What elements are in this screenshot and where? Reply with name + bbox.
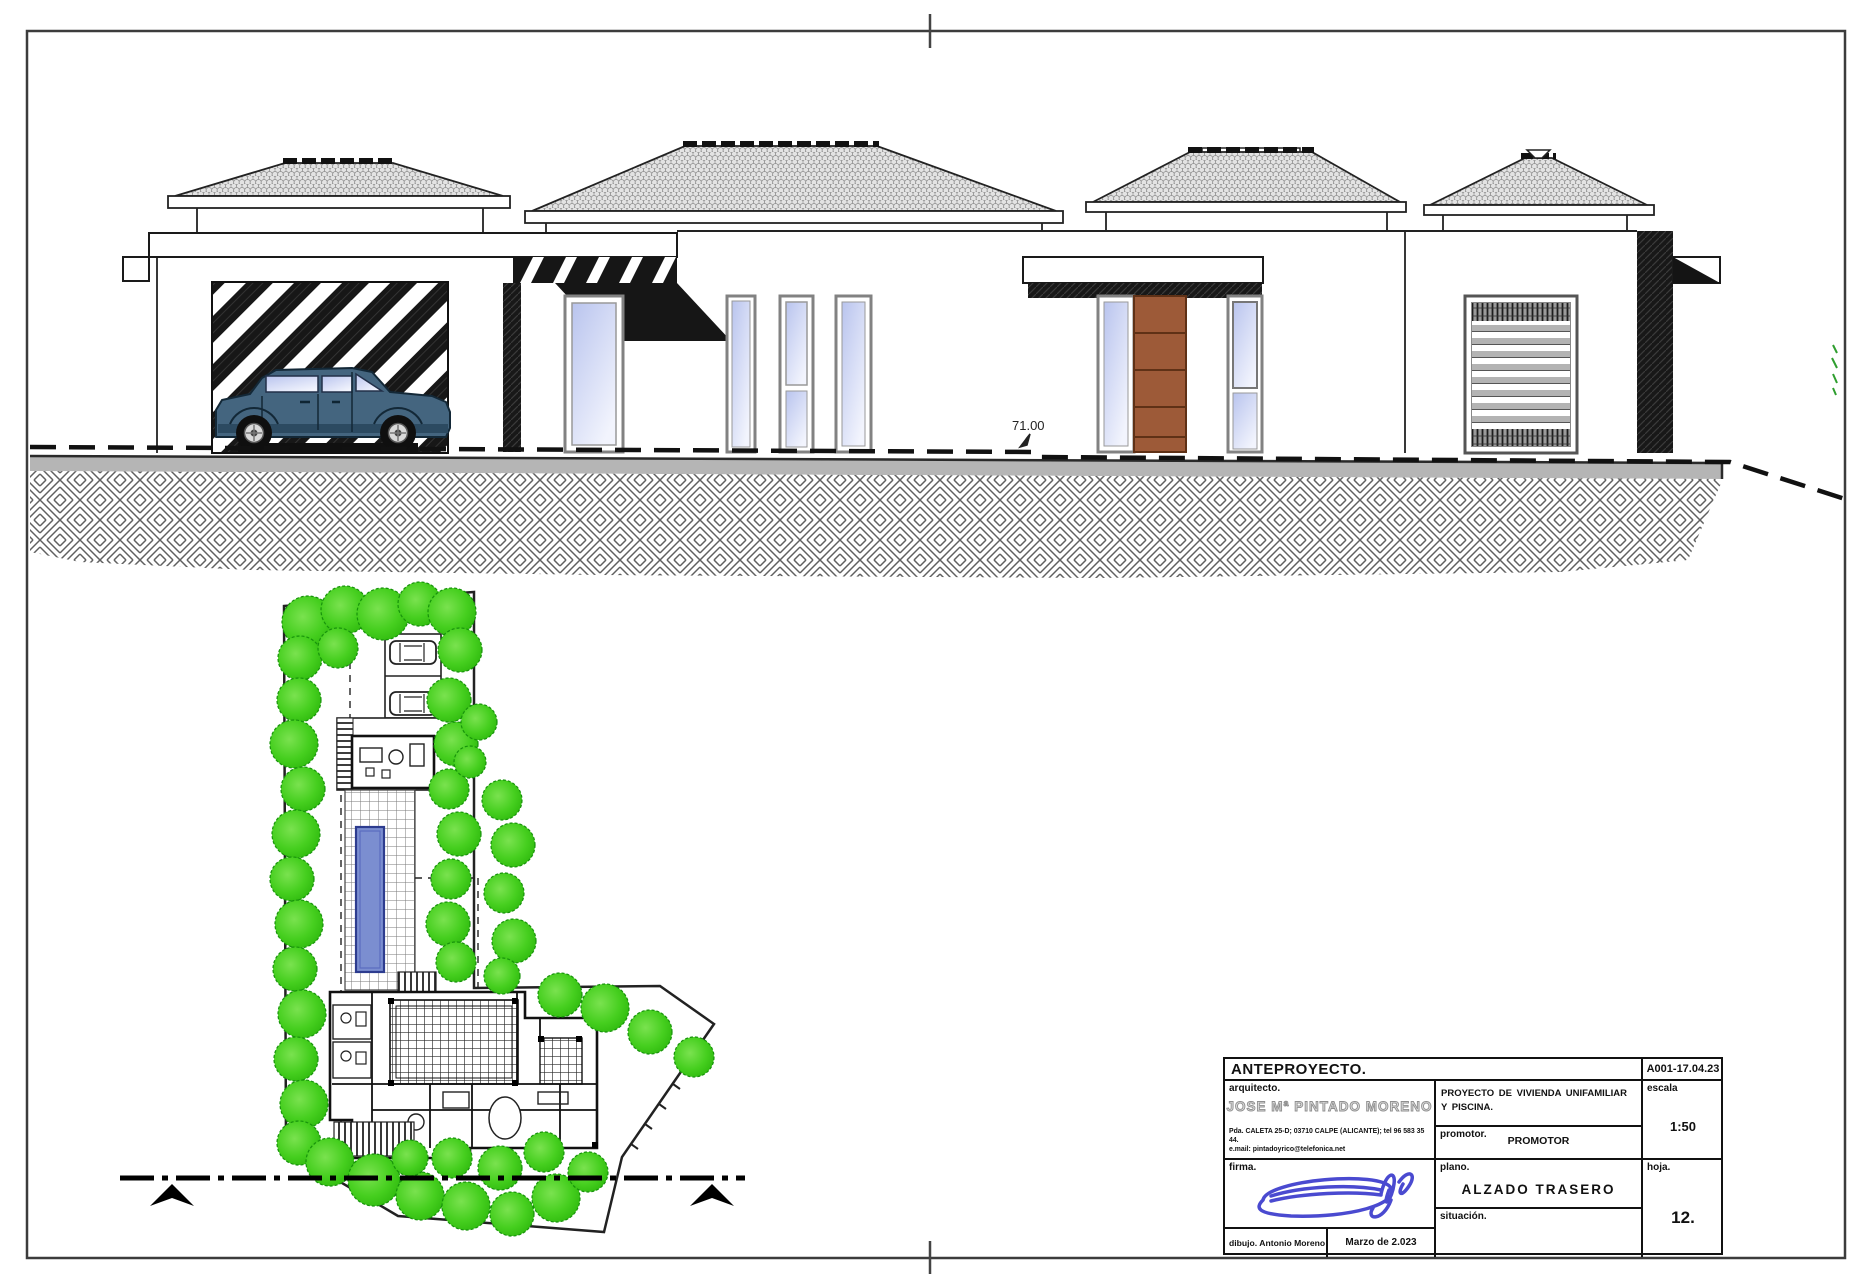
drawn-by-cell: dibujo. Antonio Moreno <box>1225 1229 1328 1257</box>
sheet-number-cell: hoja. 12. <box>1643 1160 1723 1257</box>
tree-icon <box>437 812 481 856</box>
title-block: ANTEPROYECTO. A001-17.04.23 arquitecto. … <box>1223 1057 1723 1255</box>
scale-label: escala <box>1647 1083 1678 1094</box>
tree-icon <box>426 902 470 946</box>
garage-corner-shadow <box>1637 231 1673 453</box>
tree-icon <box>581 984 629 1032</box>
hip-roof-garage <box>1424 150 1654 231</box>
drawn-by-label: dibujo. <box>1229 1238 1257 1248</box>
signature-cell: firma. <box>1225 1160 1436 1229</box>
tree-icon <box>454 746 486 778</box>
tree-icon <box>436 942 476 982</box>
signature-icon <box>1233 1162 1429 1226</box>
project-cell: PROYECTO DE VIVIENDA UNIFAMILIAR Y PISCI… <box>1436 1081 1643 1160</box>
sheet-code: A001-17.04.23 <box>1643 1059 1723 1075</box>
plan-name-cell: plano. ALZADO TRASERO <box>1436 1160 1643 1209</box>
plan-label: plano. <box>1440 1162 1469 1173</box>
tree-icon <box>280 1080 328 1128</box>
section-arrow-icon <box>690 1184 734 1206</box>
title-block-phase-cell: ANTEPROYECTO. <box>1225 1059 1643 1081</box>
tree-icon <box>538 973 582 1017</box>
rear-elevation: 71.00 <box>30 144 1845 578</box>
tall-window <box>727 296 755 452</box>
tree-icon <box>392 1140 428 1176</box>
tree-icon <box>484 958 520 994</box>
tree-icon <box>281 767 325 811</box>
tree-icon <box>431 859 471 899</box>
location-cell: situación. <box>1436 1209 1643 1257</box>
drawing-sheet: 71.00 <box>0 0 1859 1280</box>
tree-icon <box>628 1010 672 1054</box>
hip-roof-center <box>525 144 1063 233</box>
fascia-step <box>123 257 149 281</box>
entrance-canopy <box>1023 257 1263 283</box>
fascia-band <box>149 233 677 257</box>
tree-icon <box>278 636 322 680</box>
architect-email: e.mail: pintadoyrico@telefonica.net <box>1229 1146 1432 1155</box>
tree-icon <box>490 1192 534 1236</box>
tree-icon <box>478 1146 522 1190</box>
scale-cell: escala 1:50 <box>1643 1081 1723 1160</box>
date-cell: Marzo de 2.023 <box>1328 1229 1436 1257</box>
hip-roof-entrance <box>1086 148 1406 231</box>
tree-icon <box>432 1138 472 1178</box>
location-label: situación. <box>1440 1211 1487 1222</box>
garage-door <box>1465 296 1577 453</box>
tree-icon <box>568 1152 608 1192</box>
tree-icon <box>442 1182 490 1230</box>
tree-icon <box>278 990 326 1038</box>
promoter-value: PROMOTOR <box>1436 1135 1641 1147</box>
hip-roof-left <box>168 161 510 233</box>
tree-icon <box>273 947 317 991</box>
car-wheel <box>236 415 272 451</box>
architect-cell: arquitecto. JOSE Mª PINTADO MORENO Pda. … <box>1225 1081 1436 1160</box>
plot-stamp <box>1832 345 1837 395</box>
tall-window-split <box>780 296 813 452</box>
promoter-row: promotor. PROMOTOR <box>1436 1125 1641 1158</box>
tree-icon <box>461 704 497 740</box>
tree-icon <box>270 857 314 901</box>
entrance-door <box>1134 296 1186 452</box>
section-arrow-icon <box>150 1184 194 1206</box>
terrace-grid <box>390 1000 518 1084</box>
entrance-sidelight-left <box>1098 296 1134 452</box>
car-plan <box>390 641 436 664</box>
title-block-code-cell: A001-17.04.23 <box>1643 1059 1723 1081</box>
tree-icon <box>274 1037 318 1081</box>
tree-icon <box>270 720 318 768</box>
tall-window <box>836 296 871 452</box>
sheet-label: hoja. <box>1647 1162 1670 1173</box>
tree-icon <box>484 873 524 913</box>
car-window <box>266 376 318 392</box>
tree-icon <box>482 780 522 820</box>
pergola-post-shadow <box>503 283 521 452</box>
project-title: PROYECTO DE VIVIENDA UNIFAMILIAR Y PISCI… <box>1436 1081 1641 1116</box>
tree-icon <box>524 1132 564 1172</box>
site-plan <box>120 582 745 1236</box>
carport <box>212 282 450 453</box>
tree-icon <box>318 628 358 668</box>
sheet-value: 12. <box>1643 1208 1723 1228</box>
tree-icon <box>491 823 535 867</box>
entrance-sidelight-right <box>1228 296 1262 452</box>
glass-door <box>565 296 623 452</box>
architect-name: JOSE Mª PINTADO MORENO <box>1225 1099 1434 1114</box>
phase-text: ANTEPROYECTO. <box>1225 1059 1641 1078</box>
tree-icon <box>275 900 323 948</box>
tree-icon <box>272 810 320 858</box>
tree-icon <box>428 588 476 636</box>
level-label: 71.00 <box>1012 418 1045 433</box>
architect-address: Pda. CALETA 25-D; 03710 CALPE (ALICANTE)… <box>1229 1128 1432 1146</box>
tree-icon <box>277 678 321 722</box>
plan-value: ALZADO TRASERO <box>1436 1182 1641 1197</box>
car-wheel <box>380 415 416 451</box>
tree-icon <box>492 919 536 963</box>
scale-value: 1:50 <box>1643 1119 1723 1134</box>
tree-icon <box>438 628 482 672</box>
date-value: Marzo de 2.023 <box>1328 1229 1434 1248</box>
terrace-grid <box>540 1038 582 1084</box>
ground-hatch <box>30 471 1722 578</box>
architect-label: arquitecto. <box>1229 1083 1280 1094</box>
tree-icon <box>674 1037 714 1077</box>
drawn-by-value: Antonio Moreno <box>1259 1238 1325 1248</box>
car-window <box>322 376 352 392</box>
